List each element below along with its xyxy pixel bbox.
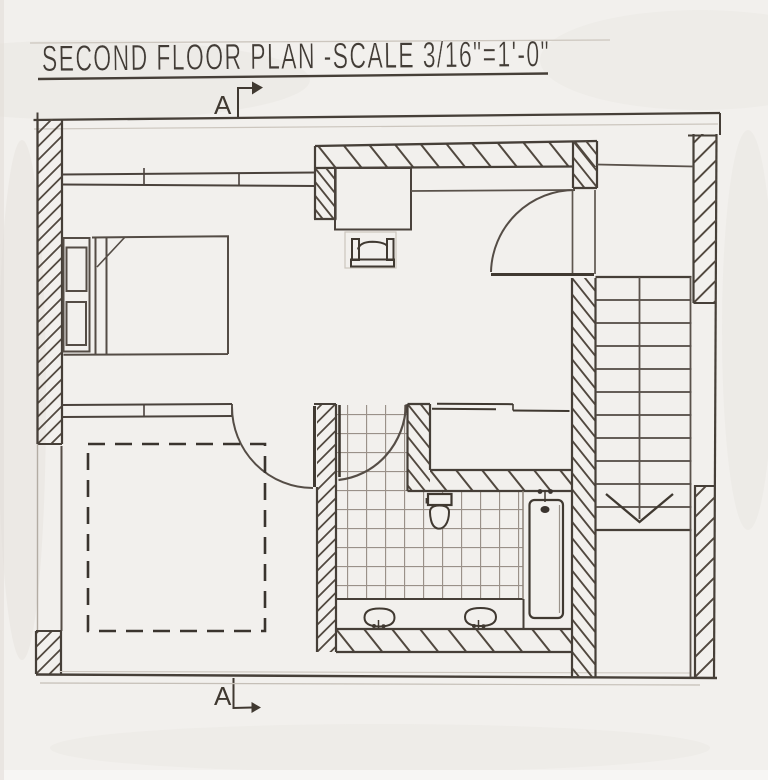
svg-text:A: A [214,681,232,711]
svg-text:A: A [214,90,232,120]
svg-text:SECOND FLOOR PLAN -SCALE 3/16": SECOND FLOOR PLAN -SCALE 3/16"=1'-0" [42,34,551,80]
